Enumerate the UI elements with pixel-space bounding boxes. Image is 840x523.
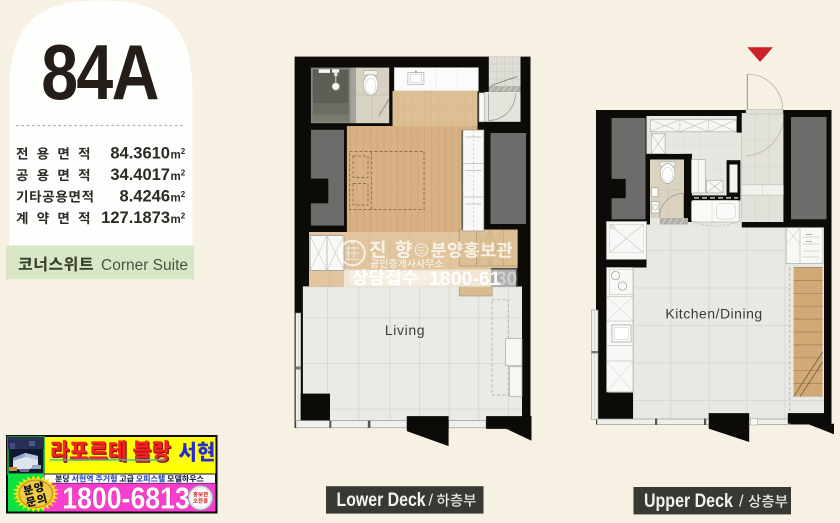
svg-text:Kitchen/Dining: Kitchen/Dining (665, 306, 762, 322)
svg-text:84A: 84A (41, 29, 158, 116)
svg-text:127.1873: 127.1873 (101, 209, 170, 227)
svg-text:8.4246: 8.4246 (120, 188, 170, 206)
svg-text:Lower Deck: Lower Deck (337, 488, 426, 510)
svg-text:1800-61: 1800-61 (429, 268, 501, 290)
svg-text:/: / (739, 493, 744, 511)
svg-text:/: / (429, 492, 434, 510)
svg-text:Living: Living (385, 322, 425, 338)
svg-text:34.4017: 34.4017 (110, 166, 170, 184)
svg-text:Corner Suite: Corner Suite (101, 257, 188, 274)
svg-text:84.3610: 84.3610 (110, 145, 170, 163)
svg-text:Upper Deck: Upper Deck (644, 490, 733, 512)
svg-text:30: 30 (496, 269, 517, 290)
svg-text:1800-6813: 1800-6813 (62, 482, 190, 516)
